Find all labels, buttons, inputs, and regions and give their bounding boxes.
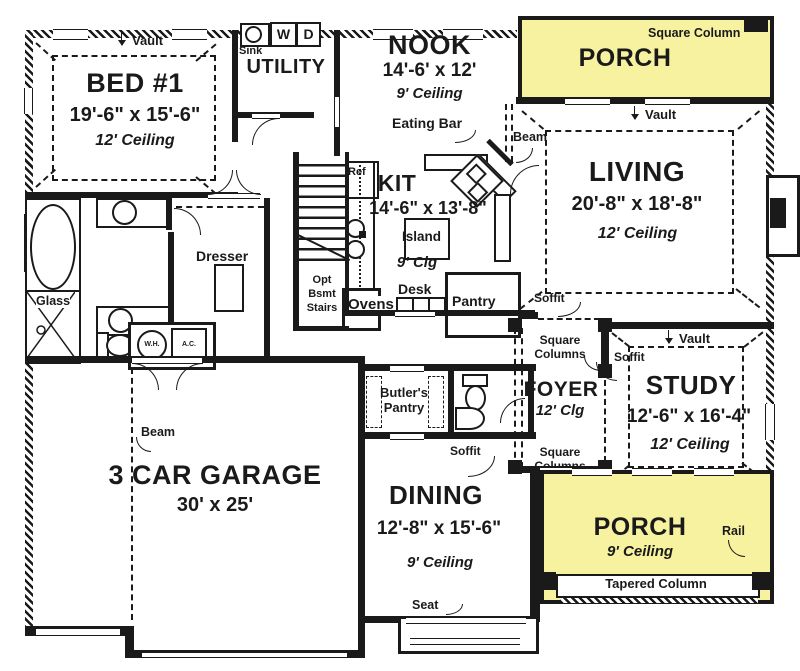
leader-arc bbox=[136, 437, 151, 452]
window bbox=[53, 29, 88, 40]
wall-stairs-right bbox=[345, 152, 349, 310]
study-ceiling: 12' Ceiling bbox=[622, 436, 758, 454]
glass-label: Glass bbox=[36, 294, 70, 308]
square-columns-upper-2: Columns bbox=[528, 348, 592, 361]
bed1-name: BED #1 bbox=[50, 68, 220, 99]
opening bbox=[335, 96, 339, 128]
tray-diagonal bbox=[735, 288, 760, 308]
leader-arc bbox=[455, 130, 476, 143]
door-arc bbox=[174, 208, 201, 235]
garage-beam-line bbox=[131, 368, 133, 620]
seat-label: Seat bbox=[412, 598, 438, 612]
wall-utility-right bbox=[334, 30, 340, 158]
window bbox=[632, 468, 672, 476]
square-column-label: Square Column bbox=[648, 26, 740, 40]
stairs-label-2: Bsmt bbox=[299, 288, 345, 301]
foyer-ceiling: 12' Clg bbox=[520, 402, 600, 419]
foyer-name: FOYER bbox=[514, 378, 608, 402]
living-name: LIVING bbox=[553, 156, 721, 188]
square-columns-upper-1: Square bbox=[528, 334, 592, 347]
door-arc bbox=[252, 118, 279, 145]
window bbox=[645, 98, 690, 105]
vault-arrow bbox=[634, 106, 635, 119]
dresser-label: Dresser bbox=[196, 248, 248, 264]
dryer-box: D bbox=[296, 22, 321, 47]
kitchen-ceiling: 9' Clg bbox=[386, 254, 448, 271]
door-arc bbox=[236, 170, 261, 195]
kitchen-dims: 14'-6" x 13'-8" bbox=[364, 198, 492, 219]
vault-arrow bbox=[121, 32, 122, 45]
floor-plan: Square Column PORCH Vault BED #1 19'-6" … bbox=[0, 0, 800, 671]
vault-arrow bbox=[668, 330, 669, 343]
window bbox=[565, 98, 610, 105]
dresser bbox=[214, 264, 244, 312]
opening bbox=[390, 433, 424, 440]
study-dims: 12'-6" x 16'-4" bbox=[608, 406, 770, 428]
square-column bbox=[508, 318, 522, 332]
opening bbox=[406, 617, 526, 624]
opening bbox=[390, 365, 424, 372]
utility-name: UTILITY bbox=[234, 56, 338, 79]
garage-name: 3 CAR GARAGE bbox=[100, 460, 330, 491]
fireplace-box bbox=[770, 198, 786, 228]
garage-dims: 30' x 25' bbox=[140, 494, 290, 517]
porch-top-name: PORCH bbox=[560, 44, 690, 73]
tapered-column-block bbox=[752, 572, 770, 590]
tray-diagonal bbox=[521, 110, 544, 130]
door-arc bbox=[510, 165, 539, 194]
dining-name: DINING bbox=[376, 480, 496, 511]
living-vault-label: Vault bbox=[645, 107, 676, 122]
sink-bowl bbox=[245, 26, 262, 43]
window bbox=[572, 468, 612, 476]
opening bbox=[208, 193, 260, 199]
bed1-vault-label: Vault bbox=[132, 33, 163, 48]
living-dims: 20'-8" x 18'-8" bbox=[548, 193, 726, 216]
tapered-column-label: Tapered Column bbox=[560, 577, 752, 590]
wall-stairs-bottom bbox=[293, 326, 349, 331]
wall-study-top bbox=[601, 322, 774, 329]
bay-window bbox=[410, 638, 520, 645]
rail-label: Rail bbox=[722, 524, 745, 538]
window bbox=[694, 468, 734, 476]
leader-arc bbox=[446, 604, 463, 615]
wall-bed1-right bbox=[232, 30, 238, 142]
garage-door bbox=[142, 652, 347, 658]
soffit-dash bbox=[538, 318, 600, 320]
wall-stub bbox=[166, 196, 172, 230]
porch-bottom-name: PORCH bbox=[582, 513, 698, 542]
dining-dims: 12'-8" x 15'-6" bbox=[366, 518, 512, 540]
wall-angled bbox=[486, 139, 514, 167]
tray-diagonal bbox=[611, 332, 630, 347]
study-vault-label: Vault bbox=[679, 331, 710, 346]
wall-closet-right bbox=[264, 198, 270, 360]
pantry-label: Pantry bbox=[452, 293, 496, 309]
powder-sink bbox=[455, 407, 485, 430]
living-beam-label: Beam bbox=[513, 130, 547, 144]
faucet bbox=[359, 231, 366, 238]
study-name: STUDY bbox=[618, 370, 764, 401]
ref-label: Ref bbox=[348, 166, 366, 178]
bathtub bbox=[30, 204, 76, 290]
living-ceiling: 12' Ceiling bbox=[560, 225, 715, 243]
tapered-column-block bbox=[538, 572, 556, 590]
stairs-label-3: Stairs bbox=[299, 302, 345, 315]
closet-dash bbox=[176, 206, 264, 208]
tray-diagonal bbox=[35, 42, 56, 61]
opening bbox=[132, 357, 202, 364]
leader-arc bbox=[558, 302, 581, 317]
stair-treads bbox=[299, 156, 345, 266]
bed1-ceiling: 12' Ceiling bbox=[60, 132, 210, 150]
bed1-dims: 19'-6" x 15'-6" bbox=[40, 104, 230, 127]
window bbox=[172, 29, 207, 40]
tray-diagonal bbox=[737, 110, 760, 130]
desk-label: Desk bbox=[398, 281, 431, 297]
stairs-label-1: Opt bbox=[299, 274, 345, 287]
leader-arc bbox=[516, 148, 533, 163]
leader-arc bbox=[468, 456, 495, 477]
lavatory-sink bbox=[112, 200, 137, 225]
nook-dims: 14'-6' x 12' bbox=[352, 60, 507, 82]
porch-bottom-ceiling: 9' Ceiling bbox=[592, 543, 688, 560]
opening bbox=[395, 311, 435, 317]
window bbox=[24, 88, 33, 114]
nook-ceiling: 9' Ceiling bbox=[362, 85, 497, 102]
butlers-label-1: Butler's bbox=[360, 386, 448, 399]
kitchen-name: KIT bbox=[374, 170, 420, 197]
wh-label: W.H. bbox=[139, 332, 165, 358]
square-column-block bbox=[744, 18, 768, 32]
nook-name: NOOK bbox=[352, 30, 507, 61]
dining-ceiling: 9' Ceiling bbox=[394, 554, 486, 571]
eating-bar-counter-side bbox=[494, 194, 511, 262]
garage-door bbox=[36, 628, 120, 636]
washer-box: W bbox=[270, 22, 297, 47]
wall-dining-right bbox=[530, 466, 540, 622]
island-label: Island bbox=[402, 229, 441, 244]
wall-butlers-right bbox=[448, 364, 454, 439]
porch-step bbox=[560, 598, 758, 603]
butlers-label-2: Pantry bbox=[360, 401, 448, 414]
square-columns-lower-1: Square bbox=[528, 446, 592, 459]
tray-diagonal bbox=[743, 331, 763, 347]
eating-bar-label: Eating Bar bbox=[392, 115, 462, 131]
wall-kitchen-bottom bbox=[345, 310, 535, 316]
